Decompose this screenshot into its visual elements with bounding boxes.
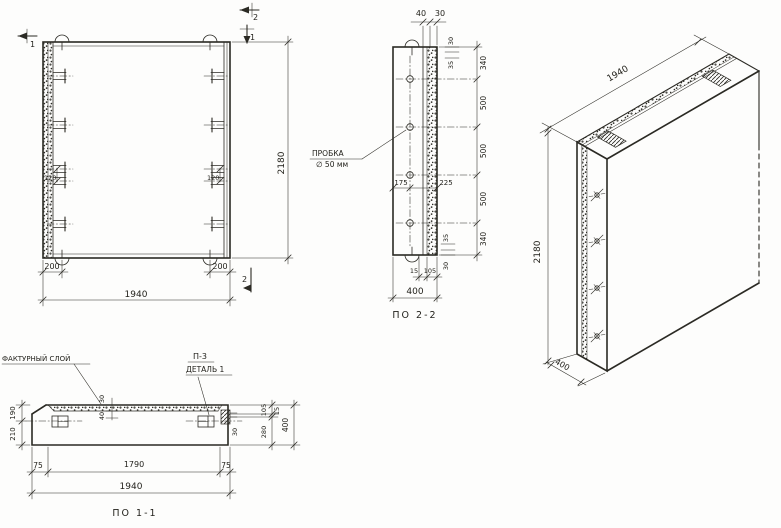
- axon-anchor-marks: [589, 189, 605, 342]
- dim-small-30-top: 30: [447, 37, 455, 45]
- section-mark-1-left-label: 1: [30, 40, 35, 49]
- leader-line: [74, 364, 101, 404]
- dim-right-400: 400: [281, 418, 290, 433]
- dim-small-30-bottom: 30: [442, 262, 450, 270]
- dim-right-0: 340: [479, 56, 488, 71]
- dim-175: 175: [394, 179, 407, 187]
- dim-loop-left: 120: [44, 174, 56, 182]
- dim-right-4: 340: [479, 232, 488, 247]
- axon-body: [577, 54, 759, 371]
- technical-drawing: 120 120 2180 200 200 1940 1: [0, 0, 781, 528]
- facture-layer-strip: [48, 405, 222, 411]
- embedded-anchors: [26, 416, 242, 427]
- section-1-1-title: ПО 1-1: [112, 508, 157, 519]
- anchor-mark: [589, 235, 605, 247]
- axon-dimensions: 1940 2180 400: [533, 35, 729, 386]
- front-view-outline: [43, 42, 230, 258]
- dim-offset-right: 200: [212, 262, 227, 271]
- section-marks: 1 2 1 2: [18, 3, 259, 292]
- anchor-loop: [204, 217, 230, 231]
- dim-190: 190: [9, 406, 17, 419]
- dim-30: 30: [435, 9, 445, 18]
- section-2-2-dimensions: 40 30 30 35 340 500 500 500 340 175 225 …: [388, 9, 488, 302]
- facture-layer-edge: [582, 145, 587, 360]
- facture-callout: ФАКТУРНЫЙ СЛОЙ: [2, 354, 101, 404]
- dim-right-2: 500: [479, 144, 488, 159]
- dim-15: 15: [410, 267, 418, 275]
- dim-75-left: 75: [33, 461, 43, 470]
- dim-right-1: 500: [479, 96, 488, 111]
- dim-1940: 1940: [120, 482, 143, 492]
- edge-anchor-loops: [47, 69, 230, 231]
- dim-layer-40: 40: [98, 412, 106, 420]
- dim-400: 400: [406, 287, 423, 297]
- section-mark-2-top-label: 2: [253, 13, 258, 22]
- section-2-2-view: ПРОБКА ∅ 50 мм 40 30 30 35 340 500 500 5…: [310, 9, 488, 321]
- section-mark-2-bottom: 2: [242, 268, 251, 292]
- front-view-dimensions: 120 120 2180 200 200 1940: [38, 36, 293, 306]
- facture-layer-strip: [427, 47, 437, 255]
- detail-label: ДЕТАЛЬ 1: [186, 365, 224, 374]
- dim-plate-30: 30: [231, 428, 239, 436]
- anchor-loop: [204, 118, 230, 132]
- dim-105: 105: [424, 267, 436, 275]
- section-mark-1-right: 1: [240, 25, 255, 44]
- dim-right-3: 500: [479, 192, 488, 207]
- dim-210: 210: [9, 427, 17, 440]
- dim-offset-left: 200: [44, 262, 59, 271]
- dim-small-35-top: 35: [447, 61, 455, 69]
- dim-width: 1940: [125, 290, 148, 300]
- section-mark-2-top: 2: [240, 3, 259, 22]
- lifting-notches: [55, 35, 217, 265]
- front-view: 120 120 2180 200 200 1940 1: [18, 3, 293, 306]
- dim-layer-30: 30: [98, 395, 106, 403]
- dim-280: 280: [260, 426, 268, 438]
- axon-dim-depth: 400: [553, 357, 571, 372]
- p3-label: П-3: [193, 352, 207, 361]
- section-1-1-outline: [32, 405, 237, 445]
- section-mark-1-left: 1: [18, 29, 37, 49]
- plug-label-line1: ПРОБКА: [312, 149, 345, 158]
- dim-loop-right: 120: [207, 174, 219, 182]
- leader-line: [362, 130, 406, 159]
- section-1-1-view: ФАКТУРНЫЙ СЛОЙ П-3 ДЕТАЛЬ 1 30 40 190 21…: [2, 352, 300, 519]
- anchor-mark: [589, 330, 605, 342]
- axon-dim-width: 1940: [606, 64, 631, 84]
- dim-225: 225: [439, 179, 452, 187]
- dim-small-35-bottom: 35: [442, 234, 450, 242]
- section-mark-1-right-label: 1: [250, 33, 255, 42]
- axonometric-view: 1940 2180 400: [533, 35, 759, 386]
- plug-label-line2: ∅ 50 мм: [316, 160, 348, 169]
- section-mark-2-bottom-label: 2: [242, 275, 247, 284]
- axon-dim-height: 2180: [533, 240, 543, 263]
- section-2-2-title: ПО 2-2: [392, 310, 437, 321]
- anchor-loop: [204, 69, 230, 83]
- facture-label: ФАКТУРНЫЙ СЛОЙ: [2, 354, 70, 363]
- section-2-2-outline: [393, 40, 437, 262]
- anchor-mark: [589, 282, 605, 294]
- dim-15: 15: [273, 407, 281, 415]
- panel-drawing-sheet: 120 120 2180 200 200 1940 1: [0, 0, 781, 528]
- plug-callout: ПРОБКА ∅ 50 мм: [310, 130, 406, 169]
- dim-75-right: 75: [221, 461, 231, 470]
- dim-height: 2180: [277, 151, 287, 174]
- dim-40: 40: [416, 9, 426, 18]
- dim-105: 105: [260, 404, 268, 416]
- dim-1790: 1790: [124, 460, 144, 469]
- anchor-mark: [589, 189, 605, 201]
